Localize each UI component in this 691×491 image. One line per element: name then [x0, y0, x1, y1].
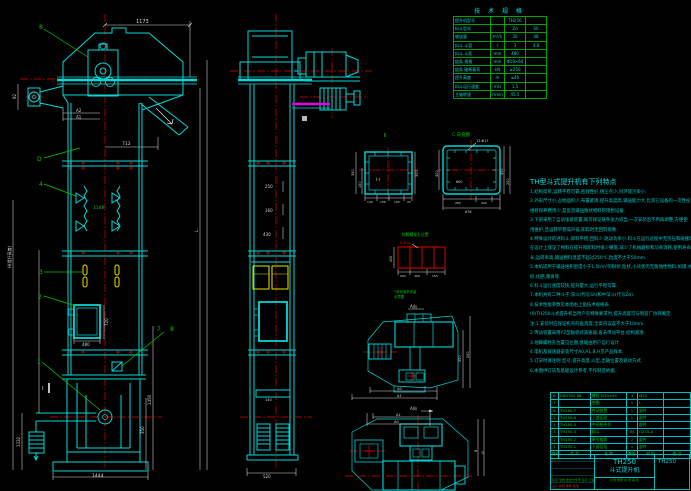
side-dim-250: 250 — [265, 184, 273, 189]
signature-row-labels: 设计 校核 审核 批准 — [552, 484, 594, 488]
dim-a1: A1 — [76, 115, 82, 120]
spec-table-panel: 技 术 规 格 提升机型号 TH250 料斗型式 Zd Sh — [453, 8, 546, 99]
bom-qty: 4 — [627, 393, 638, 400]
spec-value-1: ≤40 — [505, 74, 526, 82]
spec-row: 料斗 斗距 mm 480 — [454, 49, 547, 57]
bom-no: 2 — [551, 436, 559, 443]
feature-line: 4.电机及减速器安装尺寸A0,A1,B,H见产品样本. — [530, 348, 691, 357]
feature-line: 5.本机适用于输送堆积密度小于1.5t/m³的粉状,粒状,小块状的无腐蚀性物料,… — [530, 263, 691, 272]
bom-name: 上部区段 — [591, 414, 627, 421]
spec-value-1: Zd — [505, 25, 526, 33]
anchor-dim-b1: 300 — [414, 274, 420, 278]
sii-label: Ⅱ — [384, 133, 386, 139]
anchor-grid — [398, 247, 445, 268]
spec-value-1: 1.5 — [505, 82, 526, 90]
front-leader-lines — [42, 29, 164, 410]
bom-material: 部件 — [638, 414, 664, 421]
dp-view-mark: A向 — [410, 405, 417, 411]
spec-table-title: 技 术 规 格 — [453, 8, 546, 16]
ds-hull — [368, 316, 458, 392]
bom-remark — [664, 393, 691, 400]
sii-inner — [369, 156, 408, 190]
dp-dim-t2: A1 — [397, 394, 402, 398]
balloon-1: 1 — [37, 359, 41, 366]
side-dim-430: 430 — [263, 232, 271, 237]
dp-dim-p2: A0 — [394, 420, 399, 424]
feature-line: 8.技术性能参数见本图右上角技术规格表. — [530, 301, 691, 310]
spec-value-2 — [526, 74, 547, 82]
revision-row-labels: 标记 处数 更改文件号 签字 日期 — [552, 478, 594, 482]
anchor-dim-lines — [394, 244, 445, 275]
spec-value-2: Sh — [526, 25, 547, 33]
bom-material: 部件 — [638, 407, 664, 414]
spec-unit: r/min — [491, 90, 505, 98]
bom-name: 牵引链条 — [591, 436, 627, 443]
feature-line: 用维护,且运转平稳噪声低,卸料时无回料现象. — [530, 226, 691, 235]
spec-value-1: 3 — [505, 41, 526, 49]
bom-remark — [664, 407, 691, 414]
sii-inner-label: Ⅰ-Ⅰ — [376, 177, 380, 182]
sii-bolt-ticks — [365, 152, 412, 194]
bom-code — [559, 400, 591, 407]
spec-label: 料斗型式 — [454, 25, 491, 33]
feature-line: 7.本机共有二种斗子:深斗(代号Sh)和中深斗(代号Zd). — [530, 291, 691, 300]
spec-row: 料斗运行速度 m/s 1.5 — [454, 82, 547, 90]
spec-table-body: 提升机型号 TH250 料斗型式 Zd Sh 输送量 m³/h 30 48 — [454, 17, 547, 99]
bom-remark — [664, 429, 691, 436]
sc-dim-600: 600 — [456, 180, 462, 184]
title-block: 标记 处数 更改文件号 签字 日期 设计 校核 审核 批准 TH250 斗式提升… — [550, 454, 690, 490]
spec-value-2 — [526, 90, 547, 98]
balloon-8b: 8 — [170, 326, 174, 333]
dim-92: 92 — [12, 93, 17, 99]
anchor-dim-b2: 155 — [432, 274, 438, 278]
feature-line: 2.传动装置采用YZ型轴装式减速器,省去传动平台,结构紧凑. — [530, 329, 691, 338]
spec-row: 料斗型式 Zd Sh — [454, 25, 547, 33]
dp-red-cross — [363, 445, 375, 457]
spec-value-1: 45.5 — [505, 90, 526, 98]
bom-material: 部件 — [638, 436, 664, 443]
ds-dim-350: 350 — [458, 356, 462, 362]
spec-label: 主轴转速 — [454, 90, 491, 98]
ds-view-mark: A向 — [410, 303, 417, 309]
bom-remark — [664, 444, 691, 451]
spec-label: 提升机型号 — [454, 17, 491, 25]
features-lines: 1.结构简单,运转平稳可靠,密封性好,扬尘点少,对环境污染小.2.外形尺寸小,占… — [530, 188, 691, 376]
spec-unit: mm — [491, 49, 505, 57]
bom-name: 下部区段 — [591, 444, 627, 451]
spec-row: 提升机型号 TH250 — [454, 17, 547, 25]
dp-body — [355, 424, 465, 490]
dim-1332: 1332 — [16, 436, 21, 447]
bom-remark — [664, 422, 691, 429]
anchor-note: 8-Φ18 — [400, 241, 410, 245]
feature-line: 维修保养费用少,是竖直输送散状物料的理想设备. — [530, 207, 691, 216]
spec-unit — [491, 17, 505, 25]
bom-qty: 1 — [627, 414, 638, 421]
title-block-center: TH250 斗式提升机 比例 数量 共 张 第 张 — [595, 455, 655, 489]
spec-value-1: TH250 — [505, 17, 526, 25]
spec-row: 提升高度 m ≤40 — [454, 74, 547, 82]
spec-label: 料斗运行速度 — [454, 82, 491, 90]
spec-value-2 — [526, 49, 547, 57]
spec-row: 链条 规格 mm Φ18×64 — [454, 58, 547, 66]
bom-qty: 1 — [627, 400, 638, 407]
drawing-product-name: 斗式提升机 — [595, 467, 654, 475]
bom-table: 8 GB5782-88 螺栓 M20×65 4 M20 7 垫圈 1 L — [550, 392, 691, 459]
bom-no: 6 — [551, 407, 559, 414]
title-block-right: TH250 — [655, 455, 689, 489]
title-block-revision-grid: 标记 处数 更改文件号 签字 日期 设计 校核 审核 批准 — [551, 455, 595, 489]
spec-label: 料斗 斗容 — [454, 41, 491, 49]
spec-value-2 — [526, 17, 547, 25]
sii-dim-b2: 195 — [394, 200, 400, 204]
bom-row: 3 TH250.3 料斗 84 Q235-A — [551, 429, 691, 436]
sii-dim-150: 150 — [358, 182, 362, 188]
spec-value-2 — [526, 82, 547, 90]
spec-label: 料斗 斗距 — [454, 49, 491, 57]
side-marker-square — [302, 116, 307, 121]
sc-dim-260: 260 — [455, 201, 461, 205]
bom-code: TH250.7 — [559, 407, 591, 414]
bom-code: TH250.4 — [559, 422, 591, 429]
cad-drawing-canvas: 8 D 4 3 2 1 7 8 Ⅰ 1173 92 712 A2 A1 1189… — [0, 0, 691, 491]
spec-value-2 — [526, 58, 547, 66]
bom-code: TH250.3 — [559, 429, 591, 436]
feature-line: 6.本图供订货及基础设计参考,不作制造依据. — [530, 367, 691, 376]
dp-dim-p1: A1 — [396, 413, 401, 417]
bom-material: Q235-A — [638, 429, 664, 436]
spec-unit: m — [491, 74, 505, 82]
ds-dim-lines — [408, 309, 470, 388]
drawing-number: TH250 — [655, 455, 689, 465]
side-dim-160: 160 — [265, 208, 273, 213]
sc-label: C 向视图 — [452, 131, 471, 138]
spec-unit: m/s — [491, 82, 505, 90]
spec-unit: mm — [491, 58, 505, 66]
sii-outer — [365, 152, 412, 194]
dim-1173: 1173 — [136, 19, 149, 25]
chain-links — [83, 265, 119, 287]
dim-a2: A2 — [76, 108, 82, 113]
balloon-3: 3 — [39, 269, 43, 276]
bom-row: 7 垫圈 1 L — [551, 400, 691, 407]
anchor-dim-b0: 200 — [400, 274, 406, 278]
bom-no: 4 — [551, 422, 559, 429]
side-view: 250 160 430 140 520 — [230, 14, 372, 479]
sc-dim-200r: 200 — [506, 179, 510, 185]
dp-arrowhead — [429, 410, 433, 413]
spec-row: 料斗 斗容 l 3 4.8 — [454, 41, 547, 49]
spec-unit: l — [491, 41, 505, 49]
dp-dim-h: H — [481, 451, 485, 454]
bom-qty: 2 — [627, 436, 638, 443]
bom-name: 传动装置 — [591, 407, 627, 414]
spec-label: 链条 规格 — [454, 58, 491, 66]
bom-name: 螺栓 M20×65 — [591, 393, 627, 400]
side-centerlines — [230, 14, 372, 470]
bom-qty: 1 — [627, 444, 638, 451]
bom-no: 5 — [551, 414, 559, 421]
ds-dim-550: 550 — [466, 352, 470, 358]
section-mark-label: Ⅰ — [42, 386, 44, 392]
bom-code: TH250.6 — [559, 414, 591, 421]
sii-dim-b0: 140 — [367, 200, 373, 204]
sc-dim-200b: 200 — [481, 201, 487, 205]
bom-qty: 1 — [627, 407, 638, 414]
balloon-7: 7 — [157, 326, 161, 333]
features-notes: TH型斗式提升机有下列特点 1.结构简单,运转平稳可靠,密封性好,扬尘点少,对环… — [530, 176, 691, 388]
chute-flow-arrow — [156, 108, 173, 124]
bom-row: 1 TH250.1 下部区段 1 部件 — [551, 444, 691, 451]
feature-line: 2.外形尺寸小,占地面积少,布置紧凑,提升高度高,输送能力大,比其它设备的一次性… — [530, 197, 691, 206]
sii-dim-350: 350 — [351, 170, 355, 176]
dim-1444: 1444 — [92, 473, 104, 479]
section-ii-view: Ⅱ Ⅰ-Ⅰ 350 150 300 140 156 195 22 — [351, 133, 419, 204]
bom-row: 4 TH250.4 中间机壳节 部件 — [551, 422, 691, 429]
spec-label: 链条 破断载荷 — [454, 66, 491, 74]
spec-value-2 — [526, 66, 547, 74]
bom-no: 3 — [551, 429, 559, 436]
ds-label-1: Y系列电机安装 — [394, 289, 417, 294]
dp-red-center — [345, 415, 472, 491]
spec-value-1: 30 — [505, 33, 526, 41]
feature-line: 砂,化肥,粮食等. — [530, 273, 691, 282]
feature-line: 6.料斗运行速度较快,提升量大,运行平稳可靠. — [530, 282, 691, 291]
front-view: 8 D 4 3 2 1 7 8 Ⅰ 1173 92 712 A2 A1 1189… — [6, 14, 207, 480]
sc-dim-400: 400 — [435, 171, 439, 177]
front-centerlines — [20, 14, 197, 470]
spec-row: 链条 破断载荷 kN ≥250 — [454, 66, 547, 74]
spec-row: 主轴转速 r/min 45.5 — [454, 90, 547, 98]
balloon-2: 2 — [38, 294, 42, 301]
side-structure — [240, 31, 360, 460]
bom-row: 6 TH250.7 传动装置 1 部件 — [551, 407, 691, 414]
feature-line: 4.特殊设计的进料斗,卸料平稳,回料少,驱动功率小,料斗在运行过程中无挤压和碰撞… — [530, 235, 691, 244]
spec-value-2: 48 — [526, 33, 547, 41]
feature-line: (9)TH250斗式提升机当用户有特殊要求时,提升高度可与制造厂协商确定. — [530, 310, 691, 319]
bom-no: 7 — [551, 400, 559, 407]
balloon-4: 4 — [39, 181, 43, 188]
bom-no: 8 — [551, 393, 559, 400]
feature-line: 在设计上保证了物料在提升和卸料时很少撒落,减少了机械磨损和功率消耗,使用寿命 — [530, 244, 691, 253]
bom-code: TH250.2 — [559, 436, 591, 443]
bom-panel: 8 GB5782-88 螺栓 M20×65 4 M20 7 垫圈 1 L — [550, 392, 690, 459]
feature-line: 1.结构简单,运转平稳可靠,密封性好,扬尘点少,对环境污染小. — [530, 188, 691, 197]
spec-label: 提升高度 — [454, 74, 491, 82]
bom-no: 1 — [551, 444, 559, 451]
ds-label-2: 示意图 — [394, 294, 405, 299]
bom-qty — [627, 422, 638, 429]
drive-side-view: Y系列电机安装 示意图 A向 350 550 — [363, 289, 470, 392]
drive-plan-view: A0 A1 A向 A1 A0 B H — [345, 387, 485, 491]
sc-dim-678: 678 — [465, 210, 471, 214]
bom-code: TH250.1 — [559, 444, 591, 451]
feature-line: 5.订货时请注明:型号,提升高度,斗型,出轴位置及驱动方式. — [530, 357, 691, 366]
dp-dim-t1: A0 — [397, 387, 402, 391]
anchor-dim-425: 425 — [389, 256, 393, 262]
bom-body: 8 GB5782-88 螺栓 M20×65 4 M20 7 垫圈 1 L — [551, 393, 691, 451]
bom-remark — [664, 436, 691, 443]
bom-row: 5 TH250.6 上部区段 1 部件 — [551, 414, 691, 421]
spec-value-2: 4.8 — [526, 41, 547, 49]
dim-height-label: H(提升高度) — [6, 245, 12, 268]
sii-dim-b3: 22 — [407, 200, 411, 204]
feature-line: 注:1.安装时应保证机壳的垂直度,全高内误差不大于10mm. — [530, 320, 691, 329]
side-door — [259, 302, 287, 341]
dim-712: 712 — [122, 141, 131, 147]
bom-row: 2 TH250.2 牵引链条 2 部件 — [551, 436, 691, 443]
bom-material: 部件 — [638, 444, 664, 451]
feature-line: 3.下部采用了自动张紧装置,既可保证链条张力适当,一次安装后不用再调整,方便使 — [530, 216, 691, 225]
spec-label: 输送量 — [454, 33, 491, 41]
spec-value-1: 480 — [505, 49, 526, 57]
bom-material: M20 — [638, 393, 664, 400]
bom-name: 垫圈 — [591, 400, 627, 407]
bom-qty: 84 — [627, 429, 638, 436]
balloon-d: D — [37, 156, 42, 163]
dim-480: 480 — [82, 342, 90, 347]
spec-value-1: ≥250 — [505, 66, 526, 74]
dim-720: 720 — [104, 318, 109, 326]
dim-1189: 1189 — [93, 205, 105, 211]
bom-material: 部件 — [638, 422, 664, 429]
front-structure — [28, 28, 188, 471]
bom-remark — [664, 400, 691, 407]
anchor-bolt-view: 地脚螺栓孔位置 8-Φ18 425 200 300 155 — [389, 232, 445, 278]
bom-remark — [664, 414, 691, 421]
dp-dim-b: B — [474, 449, 478, 452]
sii-dim-300: 300 — [415, 171, 419, 177]
bom-material: L — [638, 400, 664, 407]
feature-line: 长,运转率高,输送物料温度不超过250℃,粒度不大于50mm. — [530, 254, 691, 263]
bom-code: GB5782-88 — [559, 393, 591, 400]
section-c-view: C 向视图 12-Φ17 600 260 200 678 450 200 400 — [435, 131, 510, 214]
scale-row-labels: 比例 数量 共 张 第 张 — [595, 477, 654, 483]
spec-value-1: Φ18×64 — [505, 58, 526, 66]
features-heading: TH型斗式提升机有下列特点 — [530, 176, 691, 188]
sii-dim-b1: 156 — [380, 200, 386, 204]
bom-row: 8 GB5782-88 螺栓 M20×65 4 M20 — [551, 393, 691, 400]
spec-table: 提升机型号 TH250 料斗型式 Zd Sh 输送量 m³/h 30 48 — [453, 16, 547, 99]
spec-row: 输送量 m³/h 30 48 — [454, 33, 547, 41]
side-dim-140: 140 — [265, 398, 272, 402]
dim-l-label: L — [194, 229, 200, 232]
drawing-model: TH250 — [595, 455, 654, 467]
dim-1450: 1450 — [147, 394, 152, 405]
anchor-label: 地脚螺栓孔位置 — [402, 232, 429, 237]
balloon-8: 8 — [39, 24, 43, 31]
sc-note: 12-Φ17 — [476, 139, 489, 143]
side-dim-520: 520 — [263, 474, 271, 479]
dim-350-front: 350 — [140, 426, 145, 434]
spec-unit — [491, 25, 505, 33]
side-buckets — [253, 266, 288, 289]
bom-name: 料斗 — [591, 429, 627, 436]
spec-unit: kN — [491, 66, 505, 74]
sc-dim-450: 450 — [500, 169, 504, 175]
front-door — [74, 305, 100, 338]
bom-name: 中间机壳节 — [591, 422, 627, 429]
spec-unit: m³/h — [491, 33, 505, 41]
feature-line: 3.地脚螺栓孔位置见左图,基础由用户自行设计. — [530, 339, 691, 348]
